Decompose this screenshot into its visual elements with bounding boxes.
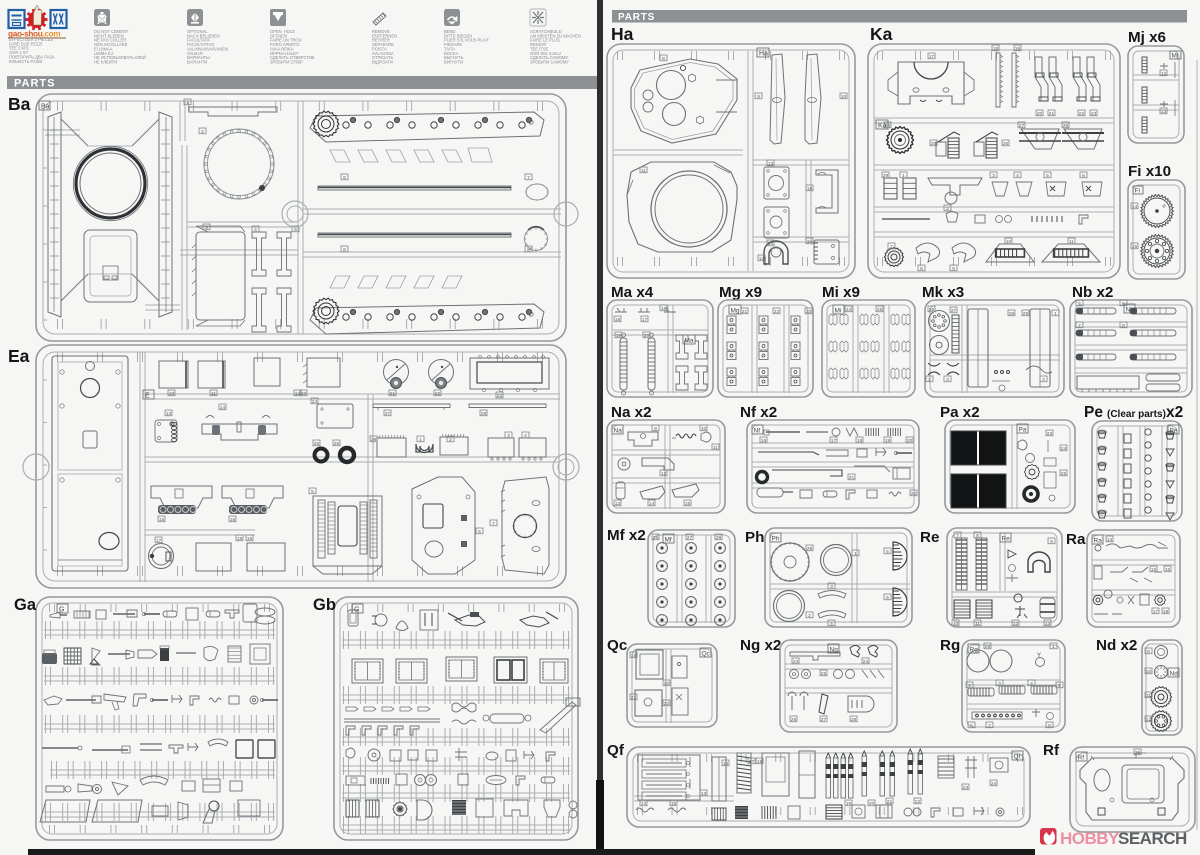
- svg-text:6: 6: [886, 595, 889, 601]
- svg-text:29: 29: [807, 546, 813, 552]
- svg-text:Pe: Pe: [1084, 404, 1103, 421]
- svg-text:23: 23: [806, 309, 812, 315]
- svg-text:25: 25: [877, 307, 883, 313]
- svg-text:27: 27: [1019, 123, 1025, 129]
- svg-text:23: 23: [963, 785, 969, 791]
- svg-text:26: 26: [791, 717, 797, 723]
- svg-text:8: 8: [343, 247, 346, 253]
- svg-text:25: 25: [821, 671, 827, 677]
- svg-text:3: 3: [507, 433, 510, 439]
- svg-text:Pa: Pa: [1019, 427, 1027, 434]
- svg-text:7: 7: [492, 521, 495, 527]
- svg-text:9: 9: [1050, 539, 1053, 545]
- svg-text:19: 19: [247, 536, 253, 542]
- svg-text:24: 24: [885, 123, 891, 129]
- svg-text:18: 18: [993, 46, 999, 52]
- svg-text:28: 28: [481, 411, 487, 417]
- svg-text:4: 4: [1016, 173, 1019, 179]
- svg-text:8: 8: [1048, 723, 1051, 729]
- svg-text:10: 10: [1006, 239, 1012, 245]
- svg-text:2: 2: [201, 129, 204, 135]
- svg-text:Rf: Rf: [1078, 755, 1085, 762]
- svg-text:18: 18: [1163, 609, 1169, 615]
- svg-text:18: 18: [661, 306, 667, 312]
- svg-text:8: 8: [1122, 323, 1125, 329]
- svg-text:19: 19: [616, 333, 622, 339]
- svg-text:Nd x2: Nd x2: [1096, 637, 1137, 654]
- svg-text:Ha: Ha: [759, 51, 768, 58]
- svg-text:17: 17: [831, 438, 837, 444]
- svg-text:Ka: Ka: [870, 24, 893, 44]
- svg-text:20: 20: [664, 681, 670, 687]
- svg-text:Qf: Qf: [1014, 754, 1021, 761]
- svg-text:21: 21: [390, 391, 396, 397]
- svg-text:PARTS: PARTS: [14, 78, 55, 90]
- svg-text:3: 3: [830, 584, 833, 590]
- svg-text:2: 2: [808, 613, 811, 619]
- svg-text:24: 24: [846, 307, 852, 313]
- svg-text:17: 17: [642, 317, 648, 323]
- svg-text:20: 20: [1037, 111, 1043, 117]
- svg-text:5: 5: [1058, 683, 1061, 689]
- svg-text:22: 22: [435, 391, 441, 397]
- svg-text:10: 10: [953, 621, 959, 627]
- svg-text:11: 11: [1146, 693, 1151, 699]
- svg-text:Na: Na: [614, 428, 623, 435]
- svg-text:8: 8: [920, 266, 923, 272]
- svg-text:16: 16: [807, 239, 813, 245]
- svg-text:14: 14: [220, 405, 226, 411]
- svg-text:15: 15: [1132, 244, 1138, 250]
- svg-text:Nb x2: Nb x2: [1072, 284, 1113, 301]
- svg-text:7: 7: [527, 175, 530, 181]
- svg-text:25: 25: [1135, 750, 1141, 756]
- svg-text:10: 10: [1146, 669, 1152, 675]
- svg-text:29: 29: [371, 437, 377, 443]
- svg-text:Mj x6: Mj x6: [1128, 29, 1166, 46]
- svg-text:26: 26: [1003, 141, 1009, 147]
- svg-text:5: 5: [1046, 173, 1049, 179]
- svg-text:6: 6: [1122, 301, 1125, 307]
- svg-text:5: 5: [294, 227, 297, 233]
- svg-text:Ba: Ba: [41, 104, 50, 111]
- svg-text:1: 1: [186, 100, 189, 106]
- svg-text:Ph: Ph: [772, 536, 780, 543]
- svg-text:Ba: Ba: [8, 94, 31, 114]
- svg-text:12: 12: [661, 471, 667, 477]
- svg-text:2: 2: [449, 437, 452, 443]
- svg-text:26: 26: [929, 307, 935, 313]
- svg-text:23: 23: [497, 393, 503, 399]
- svg-text:29: 29: [1023, 311, 1029, 317]
- svg-text:7: 7: [890, 244, 893, 250]
- svg-text:Ra: Ra: [1094, 538, 1103, 545]
- svg-text:10: 10: [169, 391, 175, 397]
- svg-text:Nf x2: Nf x2: [740, 404, 777, 421]
- svg-text:14: 14: [649, 501, 655, 507]
- svg-text:11: 11: [1069, 239, 1074, 245]
- svg-text:5: 5: [1078, 301, 1081, 307]
- svg-text:17: 17: [749, 759, 755, 765]
- svg-text:22: 22: [664, 701, 670, 707]
- svg-text:11: 11: [975, 621, 980, 627]
- svg-text:9: 9: [757, 94, 760, 100]
- svg-text:7: 7: [956, 533, 959, 539]
- svg-text:22: 22: [911, 491, 917, 497]
- svg-text:12: 12: [759, 256, 765, 262]
- svg-text:21: 21: [887, 799, 893, 805]
- svg-text:16: 16: [230, 517, 236, 523]
- svg-text:25: 25: [1061, 471, 1067, 477]
- svg-text:27: 27: [687, 535, 693, 541]
- svg-text:27: 27: [951, 308, 957, 314]
- svg-text:24: 24: [312, 399, 318, 405]
- svg-text:25: 25: [314, 441, 320, 447]
- svg-text:(Clear parts): (Clear parts): [1107, 409, 1166, 420]
- svg-text:16: 16: [761, 438, 767, 444]
- svg-text:7: 7: [988, 723, 991, 729]
- svg-text:Fi: Fi: [1135, 188, 1140, 195]
- svg-text:Ea: Ea: [8, 346, 30, 366]
- svg-text:4: 4: [1030, 681, 1033, 687]
- svg-text:Ng x2: Ng x2: [740, 637, 781, 654]
- svg-text:17: 17: [156, 538, 162, 544]
- svg-text:13: 13: [701, 791, 707, 797]
- svg-text:Ga: Ga: [14, 596, 37, 614]
- svg-text:28: 28: [1009, 311, 1015, 317]
- svg-text:9: 9: [952, 266, 955, 272]
- svg-text:Ph: Ph: [745, 529, 764, 546]
- svg-text:Mk x3: Mk x3: [922, 284, 964, 301]
- svg-text:HOBBY: HOBBY: [1060, 829, 1120, 848]
- svg-text:4: 4: [830, 621, 833, 627]
- svg-text:6: 6: [478, 529, 481, 535]
- svg-text:15: 15: [1151, 567, 1157, 573]
- svg-text:19: 19: [631, 653, 637, 659]
- svg-text:Rf: Rf: [1043, 742, 1060, 759]
- svg-text:Qf: Qf: [607, 742, 625, 759]
- svg-text:16: 16: [723, 761, 729, 767]
- svg-text:19: 19: [846, 801, 852, 807]
- svg-text:Mg x9: Mg x9: [719, 284, 762, 301]
- svg-text:1: 1: [902, 173, 905, 179]
- svg-text:SEARCH: SEARCH: [1118, 829, 1187, 848]
- svg-text:Pa x2: Pa x2: [940, 404, 980, 421]
- svg-text:25: 25: [931, 141, 937, 147]
- svg-text:6: 6: [1082, 173, 1085, 179]
- svg-text:22: 22: [774, 309, 780, 315]
- svg-text:18: 18: [757, 759, 763, 765]
- svg-text:4: 4: [524, 433, 527, 439]
- svg-text:13: 13: [615, 501, 621, 507]
- svg-text:Ma x4: Ma x4: [611, 284, 654, 301]
- svg-text:Na x2: Na x2: [611, 404, 652, 421]
- svg-text:13: 13: [1161, 109, 1167, 115]
- svg-text:4: 4: [254, 227, 257, 233]
- svg-text:12: 12: [1146, 717, 1152, 723]
- svg-text:21: 21: [742, 309, 748, 315]
- svg-text:23: 23: [1091, 111, 1097, 117]
- svg-text:Mf x2: Mf x2: [607, 527, 646, 544]
- svg-text:16: 16: [1165, 567, 1171, 573]
- svg-text:13: 13: [768, 161, 774, 167]
- svg-text:3: 3: [992, 173, 995, 179]
- svg-text:11: 11: [211, 391, 216, 397]
- svg-text:PARTS: PARTS: [618, 12, 655, 23]
- svg-text:14: 14: [768, 241, 774, 247]
- svg-text:18: 18: [857, 438, 863, 444]
- svg-text:9: 9: [1147, 649, 1150, 655]
- svg-text:Qc: Qc: [607, 637, 627, 654]
- svg-text:Qc: Qc: [702, 651, 711, 658]
- svg-text:20: 20: [644, 333, 650, 339]
- svg-text:23: 23: [1047, 431, 1053, 437]
- svg-text:14: 14: [1132, 204, 1138, 210]
- svg-text:Mi: Mi: [835, 308, 842, 315]
- svg-text:10: 10: [701, 426, 707, 432]
- svg-text:14: 14: [641, 801, 647, 807]
- svg-text:2: 2: [946, 206, 949, 212]
- svg-text:24: 24: [863, 659, 869, 665]
- svg-text:5: 5: [311, 489, 314, 495]
- svg-text:24: 24: [991, 781, 997, 787]
- svg-text:27: 27: [821, 717, 827, 723]
- svg-text:3: 3: [998, 681, 1001, 687]
- svg-text:26: 26: [334, 441, 340, 447]
- svg-text:Ra: Ra: [1066, 531, 1086, 548]
- svg-text:13: 13: [1045, 621, 1051, 627]
- svg-text:10: 10: [841, 94, 847, 100]
- svg-text:29: 29: [883, 173, 889, 179]
- svg-text:28: 28: [716, 535, 722, 541]
- svg-text:2: 2: [968, 683, 971, 689]
- svg-text:12: 12: [1013, 621, 1019, 627]
- svg-text:3: 3: [946, 377, 949, 383]
- svg-text:7: 7: [1078, 323, 1081, 329]
- svg-text:18: 18: [237, 536, 243, 542]
- svg-text:11: 11: [641, 168, 646, 174]
- svg-text:15: 15: [671, 801, 677, 807]
- svg-text:1: 1: [419, 437, 422, 443]
- svg-text:Nd: Nd: [1170, 671, 1179, 678]
- svg-text:28: 28: [851, 717, 857, 723]
- svg-text:15: 15: [159, 517, 165, 523]
- svg-text:19: 19: [1015, 46, 1021, 52]
- svg-text:22: 22: [1079, 111, 1085, 117]
- svg-text:Re: Re: [1002, 536, 1011, 543]
- svg-text:13: 13: [166, 411, 172, 417]
- svg-text:6: 6: [343, 175, 346, 181]
- svg-text:28: 28: [1063, 123, 1069, 129]
- svg-text:8: 8: [662, 56, 665, 62]
- svg-text:Gb: Gb: [313, 596, 336, 614]
- svg-text:23: 23: [793, 659, 799, 665]
- svg-text:29: 29: [985, 644, 991, 650]
- svg-text:20: 20: [301, 391, 307, 397]
- svg-text:9: 9: [654, 426, 657, 432]
- svg-text:21: 21: [631, 695, 637, 701]
- svg-text:Re: Re: [920, 529, 939, 546]
- svg-text:21: 21: [849, 475, 855, 481]
- svg-text:17: 17: [1153, 609, 1159, 615]
- svg-text:Fi x10: Fi x10: [1128, 163, 1171, 180]
- svg-text:Mj: Mj: [1172, 53, 1179, 60]
- svg-text:12: 12: [1161, 71, 1167, 77]
- svg-text:14: 14: [1107, 537, 1113, 543]
- svg-text:24: 24: [1061, 446, 1067, 452]
- svg-text:19: 19: [885, 438, 891, 444]
- svg-text:27: 27: [385, 411, 391, 417]
- svg-text:11: 11: [713, 445, 718, 451]
- svg-text:26: 26: [653, 535, 659, 541]
- svg-text:Mf: Mf: [665, 537, 672, 544]
- svg-text:Nf: Nf: [754, 428, 761, 435]
- svg-text:6: 6: [970, 723, 973, 729]
- svg-text:16: 16: [615, 317, 621, 323]
- svg-text:E: E: [145, 393, 150, 400]
- svg-text:8: 8: [976, 533, 979, 539]
- svg-text:15: 15: [685, 501, 691, 507]
- svg-text:1: 1: [1054, 311, 1057, 317]
- svg-text:5: 5: [886, 549, 889, 555]
- svg-text:Mg: Mg: [731, 308, 740, 315]
- svg-text:Rg: Rg: [940, 637, 960, 654]
- svg-text:Mi x9: Mi x9: [822, 284, 860, 301]
- svg-text:2: 2: [928, 377, 931, 383]
- svg-text:1: 1: [854, 551, 857, 557]
- svg-text:x2: x2: [1166, 404, 1183, 421]
- svg-text:4: 4: [1042, 377, 1045, 383]
- svg-text:1: 1: [1052, 644, 1055, 650]
- svg-text:22: 22: [915, 799, 921, 805]
- svg-text:15: 15: [807, 186, 813, 192]
- svg-text:3: 3: [205, 225, 208, 231]
- svg-text:21: 21: [1049, 111, 1055, 117]
- svg-text:Y: Y: [1037, 653, 1041, 659]
- svg-text:20: 20: [907, 438, 913, 444]
- svg-text:17: 17: [929, 54, 935, 60]
- svg-text:20: 20: [869, 801, 875, 807]
- svg-text:Ha: Ha: [611, 24, 634, 44]
